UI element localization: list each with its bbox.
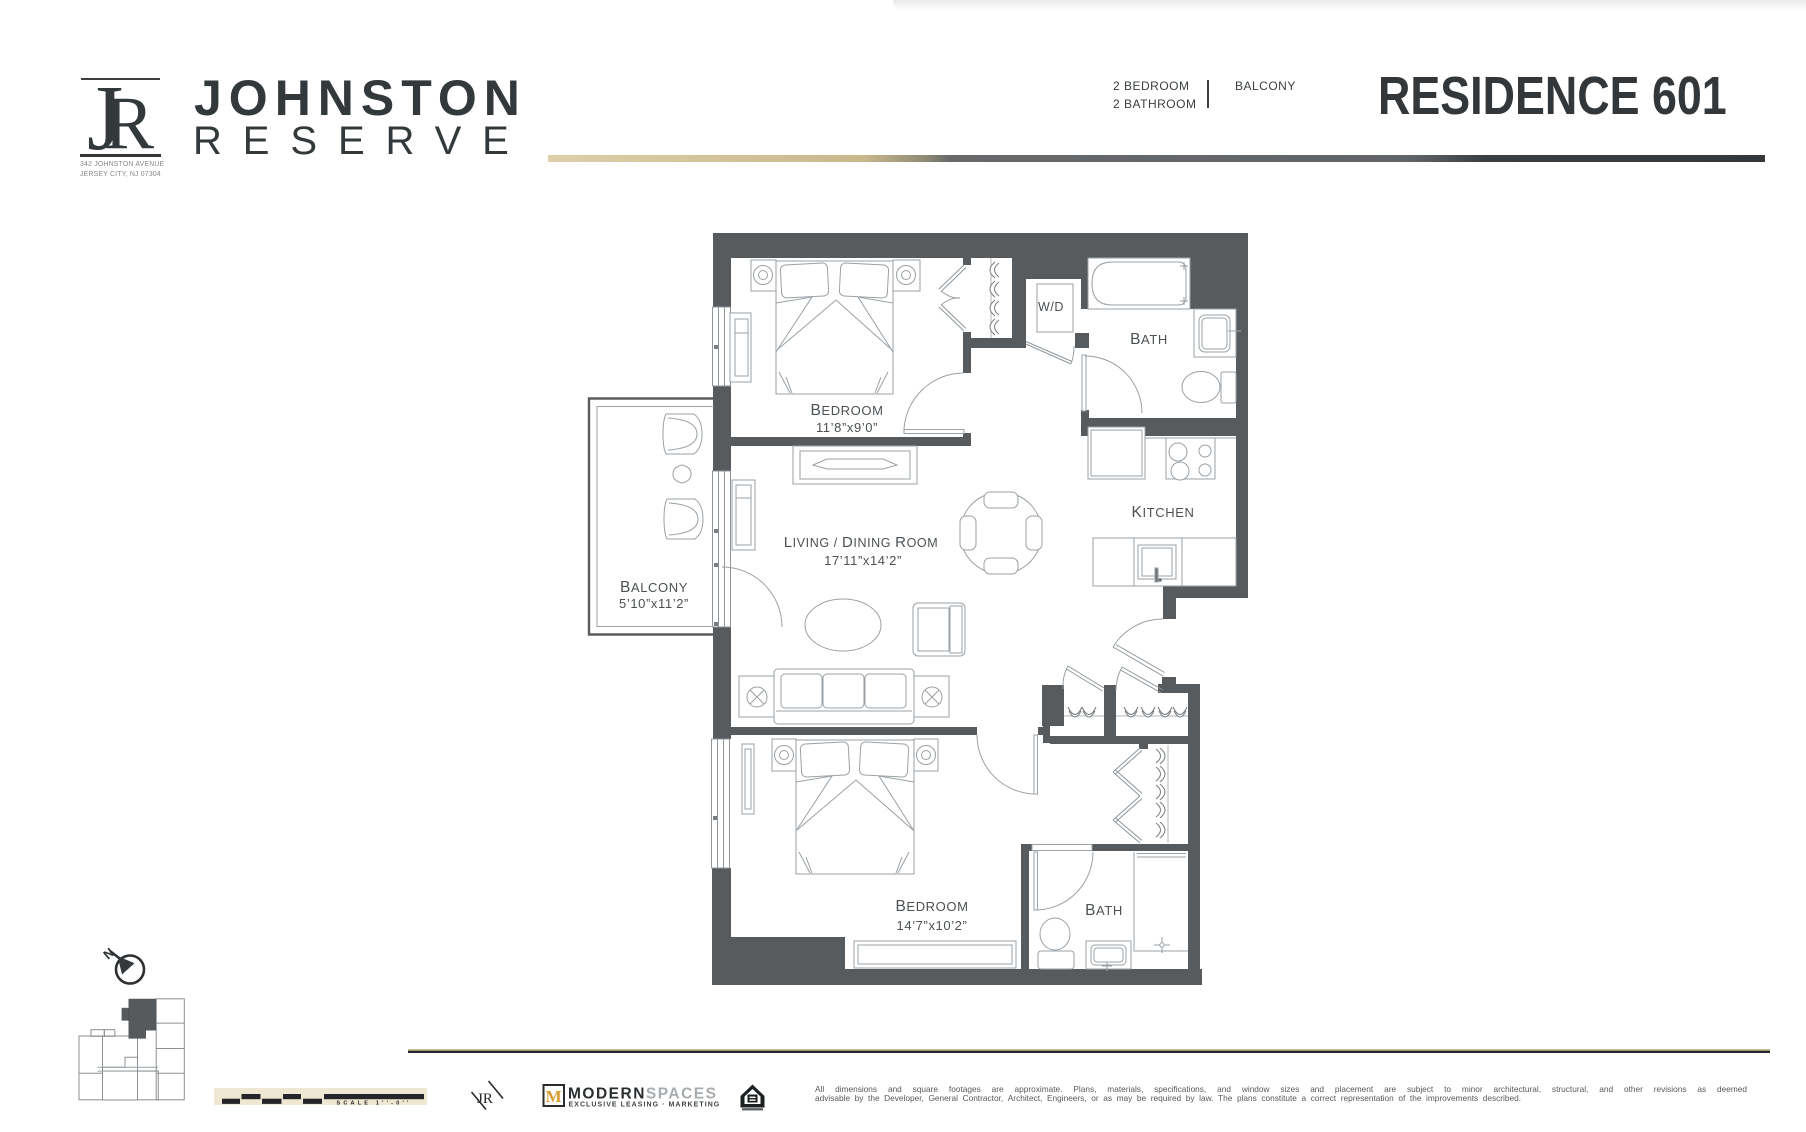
svg-text:BALCONY: BALCONY bbox=[620, 579, 688, 596]
svg-text:M: M bbox=[546, 1087, 562, 1106]
svg-text:BEDROOM: BEDROOM bbox=[810, 402, 883, 419]
svg-text:N: N bbox=[100, 945, 117, 963]
svg-text:MODERNSPACES: MODERNSPACES bbox=[568, 1086, 717, 1103]
svg-text:BATH: BATH bbox=[1130, 331, 1168, 348]
svg-text:SCALE 1''-0'': SCALE 1''-0'' bbox=[337, 1101, 412, 1107]
svg-text:KITCHEN: KITCHEN bbox=[1132, 504, 1195, 521]
svg-text:LIVING / DINING ROOM: LIVING / DINING ROOM bbox=[784, 534, 939, 551]
svg-text:14’7”x10’2”: 14’7”x10’2” bbox=[897, 918, 968, 933]
svg-text:EXCLUSIVE LEASING · MARKETING: EXCLUSIVE LEASING · MARKETING bbox=[569, 1101, 721, 1108]
svg-text:17’11”x14’2”: 17’11”x14’2” bbox=[824, 553, 902, 568]
svg-text:11’8”x9’0”: 11’8”x9’0” bbox=[816, 420, 878, 435]
svg-text:JR: JR bbox=[477, 1091, 493, 1107]
svg-text:W/D: W/D bbox=[1038, 300, 1064, 314]
svg-text:5’10”x11’2”: 5’10”x11’2” bbox=[619, 596, 689, 611]
svg-text:BATH: BATH bbox=[1085, 902, 1123, 919]
svg-text:BEDROOM: BEDROOM bbox=[895, 898, 968, 915]
